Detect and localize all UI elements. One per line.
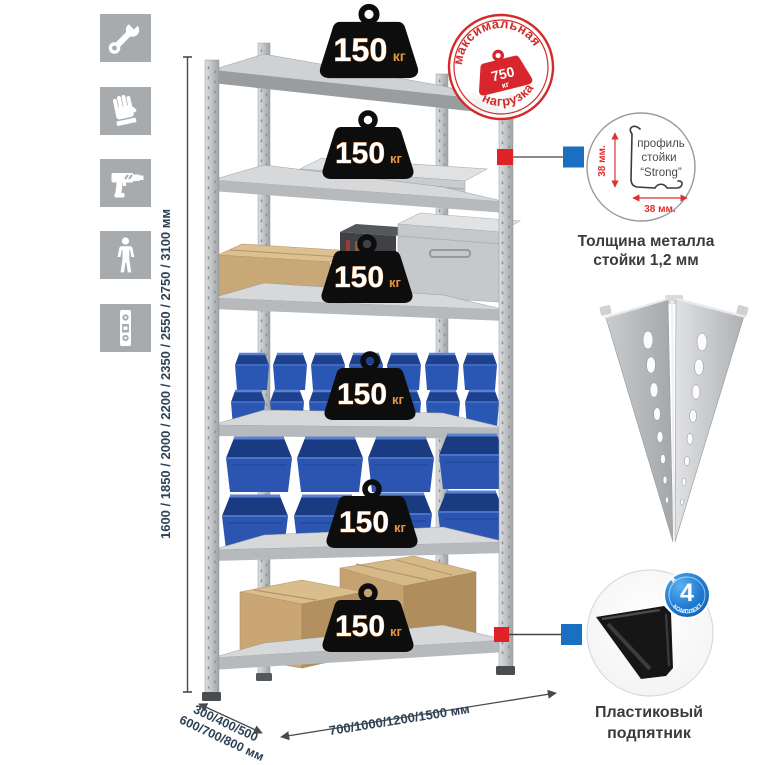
height-dimension: 1600 / 1850 / 2000 / 2200 / 2350 / 2550 … [159, 57, 192, 692]
svg-text:кг: кг [390, 624, 403, 639]
plastic-foot-detail: 4 В КОМПЛЕКТЕ Пластиковый подпятник [587, 570, 713, 742]
quantity-badge-value: 4 [680, 579, 694, 607]
svg-text:150: 150 [333, 32, 387, 68]
quantity-badge: 4 В КОМПЛЕКТЕ [663, 571, 711, 619]
svg-text:кг: кг [392, 392, 405, 407]
svg-text:кг: кг [390, 151, 403, 166]
svg-text:кг: кг [393, 48, 406, 64]
metal-thickness-caption-2: стойки 1,2 мм [593, 252, 698, 269]
scene: 1600 / 1850 / 2000 / 2200 / 2350 / 2550 … [0, 0, 765, 765]
svg-text:кг: кг [394, 520, 407, 535]
red-marker-top [497, 149, 513, 165]
profile-connector [497, 147, 584, 168]
post-profile-detail: 38 мм. 38 мм. профиль стойки “Strong” То… [578, 113, 715, 269]
level-icon [100, 304, 151, 352]
profile-dim-horizontal: 38 мм. [644, 204, 676, 215]
width-dimension-label: 700/1000/1200/1500 мм [328, 701, 471, 738]
shelf-load-badge-1: 150 кг [320, 7, 418, 78]
profile-label-1: профиль [637, 138, 685, 150]
svg-text:150: 150 [339, 506, 389, 539]
svg-text:150: 150 [337, 378, 387, 411]
profile-label-3: “Strong” [640, 167, 682, 179]
svg-text:кг: кг [389, 275, 402, 290]
foot-caption-1: Пластиковый [595, 704, 703, 721]
rack-post-front-left [202, 60, 221, 701]
rack-post-front-right [496, 95, 515, 675]
blue-marker-top [563, 147, 584, 168]
height-dimension-label: 1600 / 1850 / 2000 / 2200 / 2350 / 2550 … [159, 209, 173, 539]
wrench-icon [100, 14, 151, 62]
profile-dim-vertical: 38 мм. [597, 145, 608, 177]
max-load-stamp: максимальная нагрузка 750 кг [438, 4, 564, 130]
depth-dimension: 300/400/500 600/700/800 мм [177, 702, 266, 764]
gloves-icon [100, 87, 151, 135]
foot-connector [494, 624, 582, 645]
blue-marker-bottom [561, 624, 582, 645]
svg-text:150: 150 [334, 261, 384, 294]
red-marker-bottom [494, 627, 509, 642]
feature-icon-list [100, 14, 151, 352]
foot-caption-2: подпятник [607, 725, 692, 742]
shelf-load-badge-2: 150 кг [322, 113, 413, 179]
svg-text:150: 150 [335, 610, 385, 643]
person-icon [100, 231, 151, 279]
drill-icon [100, 159, 151, 207]
shelving-infographic: 1600 / 1850 / 2000 / 2200 / 2350 / 2550 … [0, 0, 765, 765]
svg-text:150: 150 [335, 137, 385, 170]
metal-thickness-caption-1: Толщина металла [578, 233, 715, 250]
upright-post-photo [599, 295, 749, 542]
width-dimension: 700/1000/1200/1500 мм [281, 693, 556, 738]
profile-label-2: стойки [641, 152, 676, 164]
